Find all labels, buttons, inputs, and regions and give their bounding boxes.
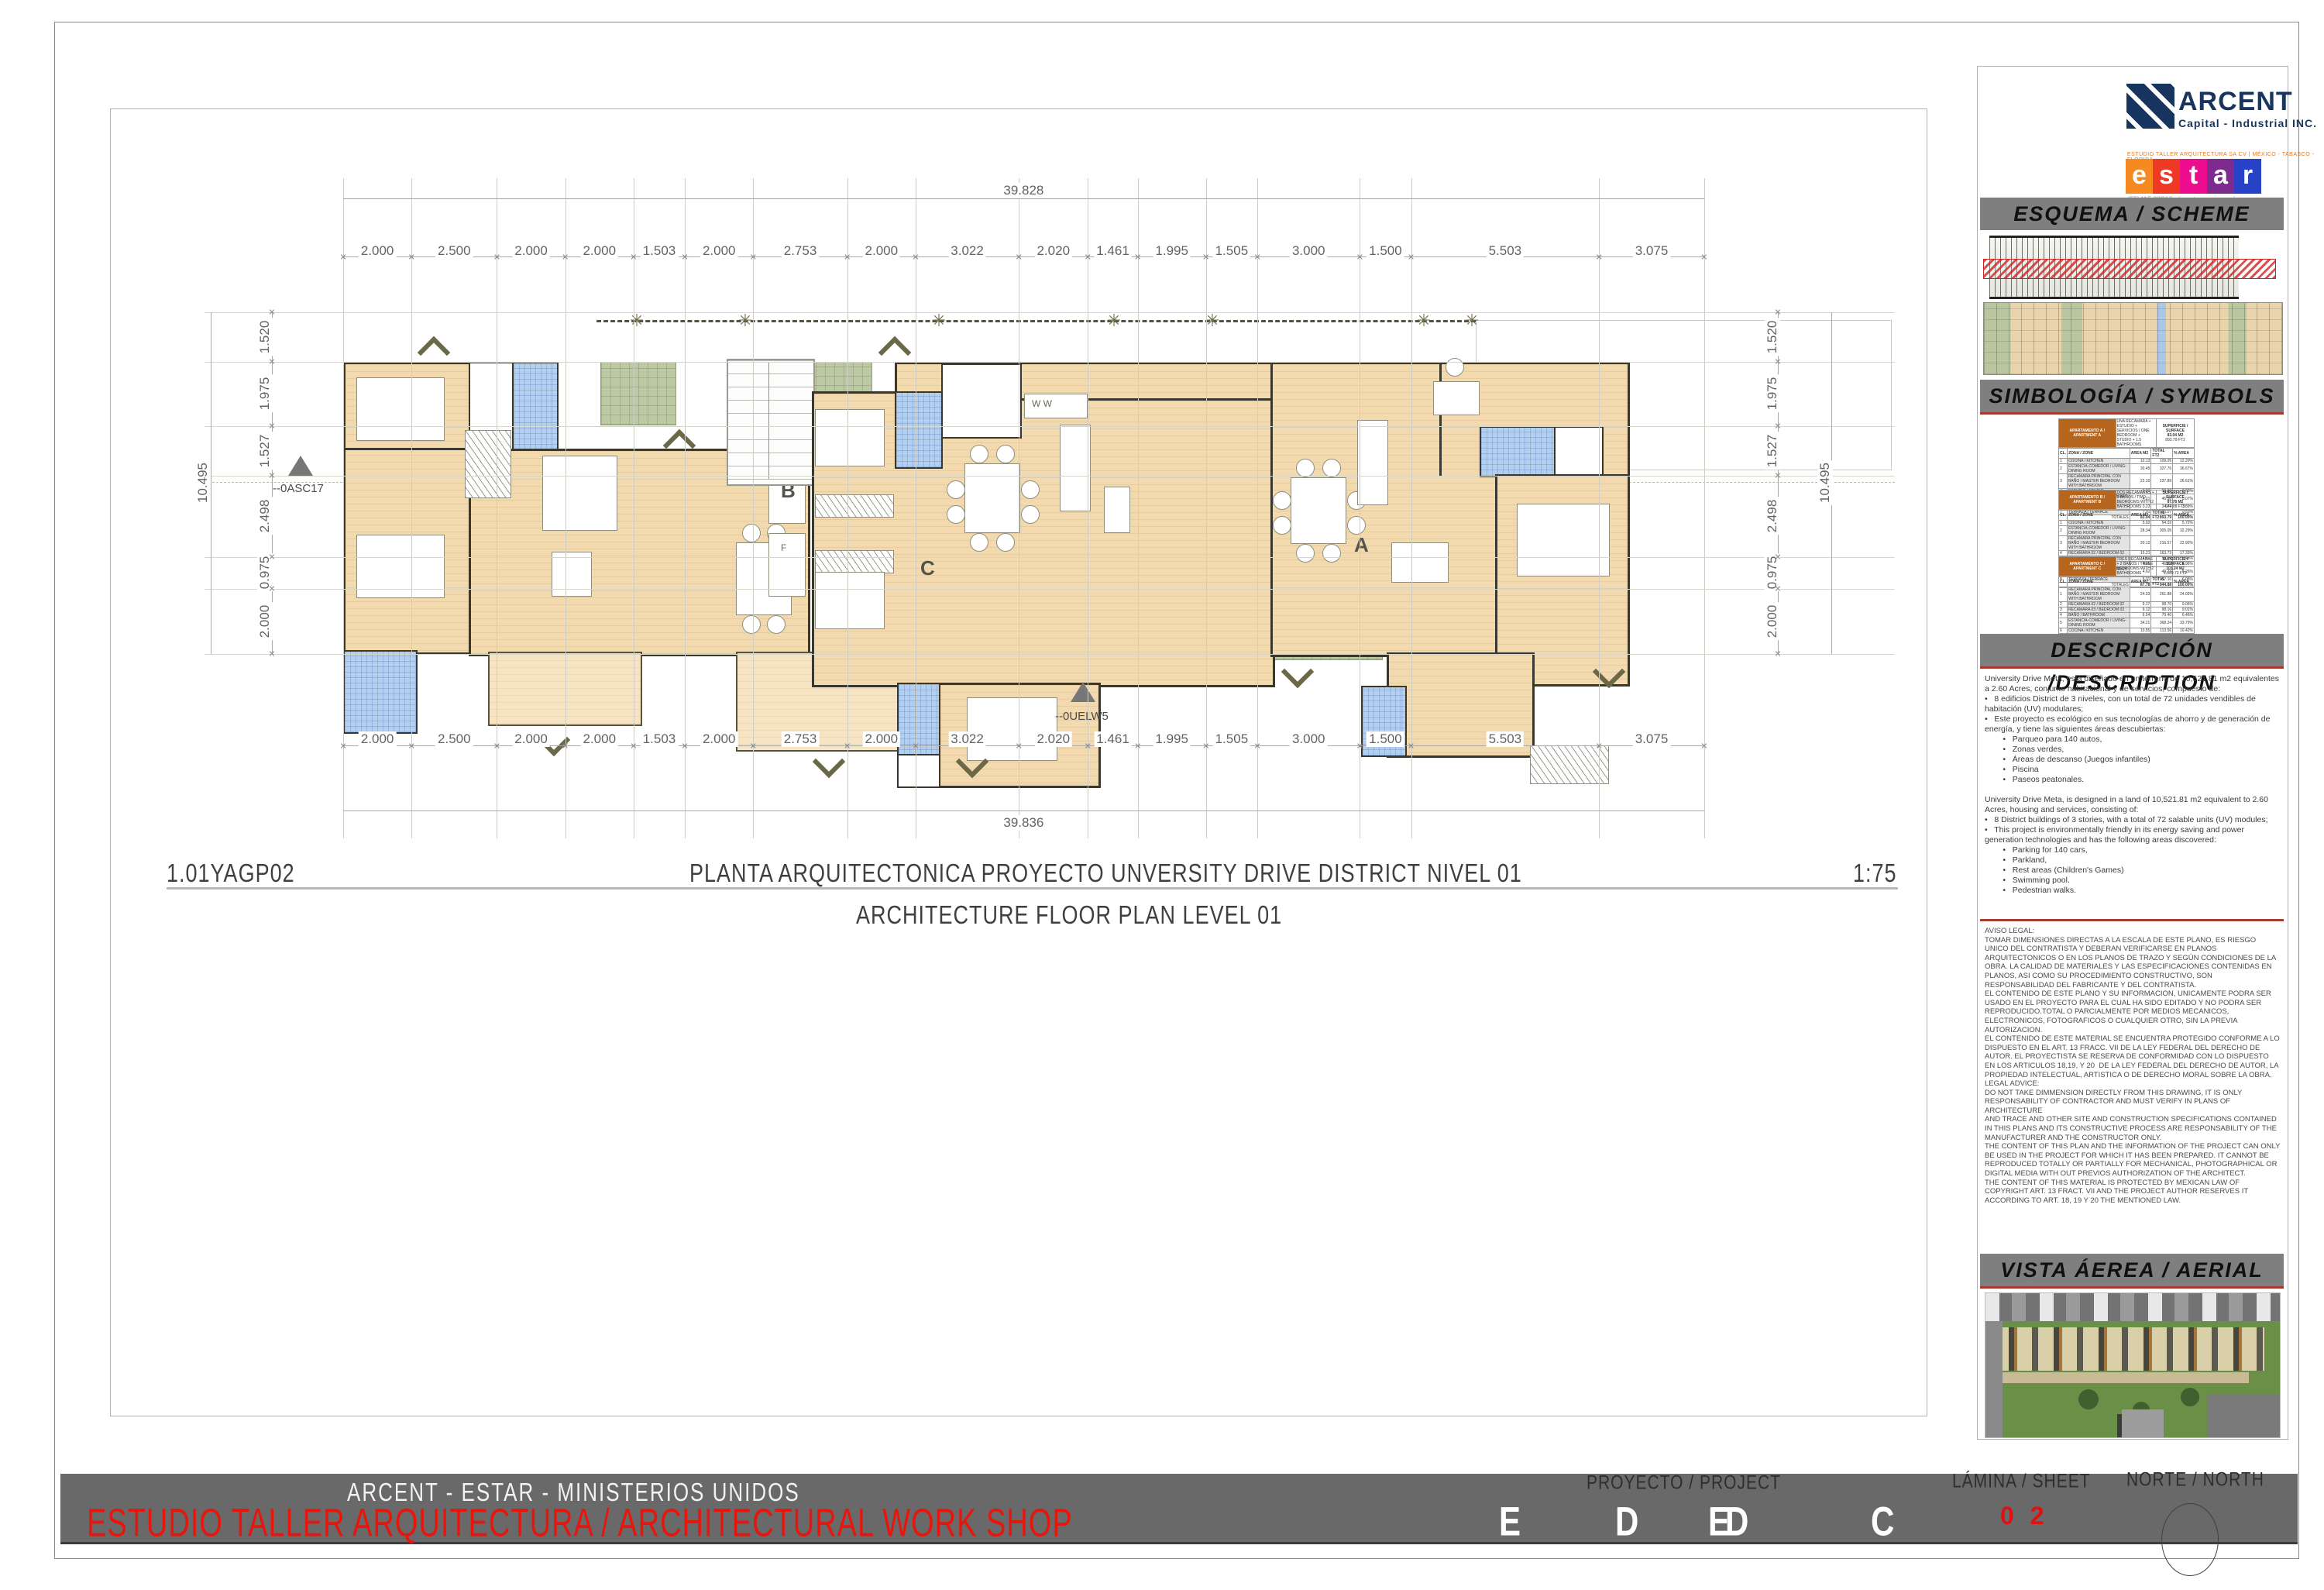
dim-tick: ✕ [1134, 742, 1141, 752]
dim-label: 2.000 [580, 243, 618, 259]
scheme-highlight-band [1983, 259, 2276, 279]
dim-tick: ✕ [493, 253, 500, 263]
estar-letter-tile: r [2234, 159, 2261, 194]
bed [815, 572, 885, 629]
dim-tick: ✕ [630, 253, 637, 263]
sofa [1060, 425, 1091, 511]
aerial-building-row [1993, 1327, 2264, 1371]
dim-label: 1.527 [1765, 432, 1780, 470]
grid-line-vertical [634, 178, 634, 838]
chair [1021, 480, 1040, 499]
dim-label: 2.000 [700, 731, 738, 747]
grid-line-vertical [1411, 178, 1412, 838]
aerial-road-left [1985, 1321, 2003, 1437]
red-divider [1980, 666, 2284, 669]
chair [970, 533, 988, 552]
sheet-number: 0 2 [2000, 1502, 2048, 1530]
plant-icon: ✳ [1465, 311, 1479, 331]
dim-label: 2.000 [359, 243, 397, 259]
grid-line-vertical [343, 178, 344, 838]
dim-tick: ✕ [562, 742, 569, 752]
dim-tick: ✕ [268, 308, 275, 318]
grid-line-horizontal [205, 557, 1895, 558]
title-underline [167, 887, 1898, 890]
dim-tick: ✕ [268, 649, 275, 659]
dim-tick: ✕ [1774, 583, 1781, 594]
dim-total-line [343, 198, 1704, 199]
estar-letter-tile: e [2126, 159, 2153, 194]
dim-total-line [343, 810, 1704, 811]
dim-tick: ✕ [1596, 742, 1603, 752]
dim-total-label: 10.495 [195, 460, 211, 505]
bathroom [895, 391, 943, 469]
dim-tick: ✕ [339, 253, 346, 263]
dim-label: 3.000 [1290, 731, 1328, 747]
project-code-c: C [1871, 1499, 1894, 1545]
dim-label: 2.498 [257, 497, 273, 535]
coffee-table [1391, 542, 1449, 583]
grid-line-horizontal [205, 654, 1895, 655]
dim-tick: ✕ [1016, 742, 1023, 752]
grid-line-vertical [497, 178, 497, 838]
dim-tick: ✕ [1085, 742, 1092, 752]
dim-tick: ✕ [339, 742, 346, 752]
scheme-plan-thumb [1983, 302, 2283, 375]
dim-label: 5.503 [1487, 731, 1525, 747]
grid-line-vertical [685, 178, 686, 838]
wall [343, 448, 469, 450]
patio-green [600, 362, 676, 425]
plant-icon: ✳ [1205, 311, 1219, 331]
dim-label: 2.500 [435, 243, 473, 259]
grid-line-vertical [916, 178, 916, 838]
estar-letter-tile: t [2180, 159, 2207, 194]
grid-line-vertical [1088, 178, 1088, 838]
grid-line-horizontal [205, 426, 1895, 427]
dim-tick: ✕ [1408, 253, 1415, 263]
bed [1517, 504, 1610, 576]
dim-label: 1.461 [1094, 243, 1132, 259]
dim-label: 5.503 [1487, 243, 1525, 259]
dim-tick: ✕ [1253, 742, 1260, 752]
dim-tick: ✕ [1596, 253, 1603, 263]
stair-centerline [768, 363, 769, 479]
dim-label: 2.753 [782, 731, 820, 747]
bathroom [1480, 426, 1557, 477]
description-es: University Drive Meta, está diseñado en … [1985, 674, 2281, 785]
chair [742, 524, 761, 542]
dim-tick: ✕ [268, 552, 275, 562]
dim-tick: ✕ [682, 253, 689, 263]
dim-total-label: 39.828 [1001, 183, 1046, 198]
chair [767, 615, 786, 634]
aerial-plaza [2207, 1394, 2280, 1437]
dim-tick: ✕ [630, 742, 637, 752]
plan-title-en: ARCHITECTURE FLOOR PLAN LEVEL 01 [856, 900, 1282, 931]
chair [947, 480, 965, 499]
closet [1530, 745, 1609, 784]
section-header-simbologia: SIMBOLOGÍA / SYMBOLS [1980, 380, 2284, 412]
sofa [1357, 420, 1388, 505]
dim-tick: ✕ [750, 253, 757, 263]
dim-tick: ✕ [1134, 253, 1141, 263]
grid-line-vertical [1360, 178, 1360, 838]
dim-tick: ✕ [1774, 649, 1781, 659]
chair [1273, 491, 1291, 510]
drawing-sheet: ✳ ✳ ✳ ✳ ✳ ✳ ✳ W F [0, 0, 2324, 1590]
grid-line-vertical [847, 178, 848, 838]
plan-title-es: PLANTA ARQUITECTONICA PROYECTO UNVERSITY… [689, 859, 1522, 889]
plan-scale: 1:75 [1853, 859, 1897, 889]
bed [967, 697, 1057, 761]
kitchen-counter [768, 533, 806, 597]
dim-label: 1.527 [257, 432, 273, 470]
wall [1439, 362, 1442, 477]
dim-tick: ✕ [1774, 356, 1781, 367]
arcent-logo-icon [2126, 84, 2174, 129]
dim-label: 1.995 [1153, 731, 1191, 747]
dim-total-label: 39.836 [1001, 815, 1046, 831]
chair [1322, 459, 1341, 477]
level-marker-label: --0ASC17 [273, 482, 324, 495]
desk-chair [1446, 358, 1464, 377]
grid-line-horizontal [205, 362, 1895, 363]
dim-label: 2.000 [700, 243, 738, 259]
estar-logo: estar [2126, 159, 2261, 194]
dim-tick: ✕ [1253, 253, 1260, 263]
dim-label: 1.500 [1367, 731, 1404, 747]
dim-label: 2.000 [512, 731, 550, 747]
dim-tick: ✕ [268, 470, 275, 480]
dim-tick: ✕ [1356, 253, 1363, 263]
dim-tick: ✕ [268, 356, 275, 367]
grid-line-horizontal [205, 312, 1895, 313]
fridge-label: F [781, 542, 786, 553]
dim-tick: ✕ [750, 742, 757, 752]
dim-label: 2.000 [863, 731, 901, 747]
closet [815, 550, 894, 573]
dim-label: 2.000 [359, 731, 397, 747]
dim-label: 2.000 [257, 603, 273, 641]
section-header-vista: VISTA ÁEREA / AERIAL VIEW [1980, 1254, 2284, 1286]
dim-tick: ✕ [1774, 421, 1781, 431]
level-marker-triangle [288, 456, 313, 476]
estar-letter-tile: s [2153, 159, 2180, 194]
description-en: University Drive Meta, is designed in a … [1985, 795, 2281, 896]
dim-tick: ✕ [268, 421, 275, 431]
dim-label: 1.461 [1094, 731, 1132, 747]
pergola-line [596, 320, 1476, 322]
grid-line-vertical [1019, 178, 1019, 838]
unit-label-a: A [1354, 533, 1369, 557]
chair [1296, 544, 1315, 563]
aerial-view-image [1985, 1292, 2281, 1438]
closet [815, 494, 894, 518]
chair [996, 445, 1015, 463]
shower-room [897, 754, 940, 788]
dim-tick: ✕ [1774, 470, 1781, 480]
section-header-descripcion: DESCRIPCIÓN /DESCRIPTION [1980, 634, 2284, 666]
staircase [727, 359, 815, 486]
grid-line-vertical [566, 178, 566, 838]
arcent-tagline: Capital - Industrial INC. [2178, 117, 2317, 129]
grid-line-vertical [1206, 178, 1207, 838]
bathroom [512, 362, 559, 452]
grid-line-vertical [1138, 178, 1139, 838]
grid-line-vertical [1599, 178, 1600, 838]
chair [1347, 516, 1366, 535]
dim-tick: ✕ [408, 253, 415, 263]
dim-tick: ✕ [408, 742, 415, 752]
washer-label: W W [1032, 398, 1052, 409]
dim-label: 3.075 [1633, 731, 1671, 747]
dim-label: 2.753 [782, 243, 820, 259]
chair [1322, 544, 1341, 563]
dim-label: 2.020 [1034, 731, 1072, 747]
dim-label: 1.975 [257, 375, 273, 413]
coffee-table [552, 552, 592, 597]
dim-tick: ✕ [844, 742, 851, 752]
plant-icon: ✳ [738, 311, 752, 331]
chair [1273, 516, 1291, 535]
dim-tick: ✕ [268, 583, 275, 594]
bathroom [343, 650, 418, 734]
level-marker-label: --0UELW5 [1055, 710, 1109, 723]
desk [1433, 381, 1480, 415]
dim-tick: ✕ [912, 253, 919, 263]
dim-tick: ✕ [562, 253, 569, 263]
dining-table [964, 463, 1020, 533]
red-divider [1980, 1286, 2284, 1289]
arcent-logo-text: ARCENT Capital - Industrial INC. [2178, 87, 2317, 129]
dim-total-line [211, 312, 211, 654]
dim-label: 2.020 [1034, 243, 1072, 259]
footer-studio-line: ESTUDIO TALLER ARQUITECTURA / ARCHITECTU… [87, 1502, 1073, 1547]
project-code-ed: ED [1708, 1499, 1744, 1545]
dim-tick: ✕ [1016, 253, 1023, 263]
section-header-esquema: ESQUEMA / SCHEME [1980, 198, 2284, 230]
chair [970, 445, 988, 463]
dim-label: 3.075 [1633, 243, 1671, 259]
arcent-name: ARCENT [2178, 87, 2293, 116]
tv-console [1104, 487, 1130, 533]
plant-icon: ✳ [1417, 311, 1431, 331]
sheet-label: LÁMINA / SHEET [1952, 1471, 2091, 1493]
grid-line-vertical [1704, 178, 1705, 838]
dim-label: 1.995 [1153, 243, 1191, 259]
dim-tick: ✕ [844, 253, 851, 263]
red-divider [1980, 919, 2284, 921]
unit-label-c: C [920, 556, 935, 580]
project-code-d: D [1615, 1499, 1638, 1545]
chair [742, 615, 761, 634]
shower-room [1554, 426, 1604, 477]
plant-icon: ✳ [1107, 311, 1121, 331]
bed [356, 377, 445, 441]
kitchen-area [941, 363, 1022, 439]
dim-label: 2.000 [512, 243, 550, 259]
legal-text: AVISO LEGAL: TOMAR DIMENSIONES DIRECTAS … [1985, 927, 2281, 1205]
chair [996, 533, 1015, 552]
dim-label: 1.503 [641, 731, 679, 747]
aerial-tree [2181, 1388, 2199, 1406]
plan-code: 1.01YAGP02 [167, 859, 295, 889]
dim-tick: ✕ [493, 742, 500, 752]
chair [947, 505, 965, 524]
level-marker-triangle [1071, 682, 1095, 702]
aerial-tree [2078, 1389, 2099, 1409]
dim-label: 1.503 [641, 243, 679, 259]
aerial-street-top [1985, 1293, 2280, 1321]
dining-table [1291, 477, 1346, 544]
sofa [542, 456, 617, 531]
grid-line-vertical [411, 178, 412, 838]
dim-label: 2.498 [1765, 497, 1780, 535]
grid-line-vertical [753, 178, 754, 838]
project-label: PROYECTO / PROJECT [1587, 1472, 1781, 1495]
dim-tick: ✕ [1700, 253, 1707, 263]
dim-label: 2.000 [580, 731, 618, 747]
plant-icon: ✳ [630, 311, 644, 331]
dim-label: 1.505 [1213, 731, 1251, 747]
dim-label: 1.520 [1765, 318, 1780, 356]
chair [1021, 505, 1040, 524]
dim-label: 2.500 [435, 731, 473, 747]
aerial-roof [2122, 1409, 2164, 1437]
plant-icon: ✳ [932, 311, 946, 331]
grid-line-horizontal [205, 589, 1895, 590]
dim-tick: ✕ [1774, 552, 1781, 562]
dim-label: 1.975 [1765, 375, 1780, 413]
north-label: NORTE / NORTH [2126, 1469, 2264, 1492]
closet [465, 430, 511, 498]
dim-label: 1.520 [257, 318, 273, 356]
dim-label: 1.500 [1367, 243, 1404, 259]
dim-tick: ✕ [1774, 308, 1781, 318]
dim-tick: ✕ [1085, 253, 1092, 263]
aerial-road [1985, 1372, 2249, 1383]
dim-tick: ✕ [1202, 253, 1209, 263]
dim-label: 3.022 [948, 731, 986, 747]
north-circle-icon [2161, 1503, 2219, 1576]
dim-tick: ✕ [1408, 742, 1415, 752]
dim-label: 3.000 [1290, 243, 1328, 259]
dim-label: 3.022 [948, 243, 986, 259]
bed [815, 409, 885, 466]
red-divider [1980, 412, 2284, 415]
grid-line-horizontal [205, 476, 1895, 477]
project-code-e: E [1499, 1499, 1521, 1545]
dim-tick: ✕ [1356, 742, 1363, 752]
dim-total-label: 10.495 [1817, 460, 1833, 505]
dim-tick: ✕ [1700, 742, 1707, 752]
chair [1296, 459, 1315, 477]
dim-tick: ✕ [912, 742, 919, 752]
dim-label: 2.000 [863, 243, 901, 259]
grid-line-vertical [1257, 178, 1258, 838]
dim-label: 2.000 [1765, 603, 1780, 641]
dim-tick: ✕ [1202, 742, 1209, 752]
dim-label: 1.505 [1213, 243, 1251, 259]
estar-letter-tile: a [2207, 159, 2234, 194]
dim-tick: ✕ [682, 742, 689, 752]
